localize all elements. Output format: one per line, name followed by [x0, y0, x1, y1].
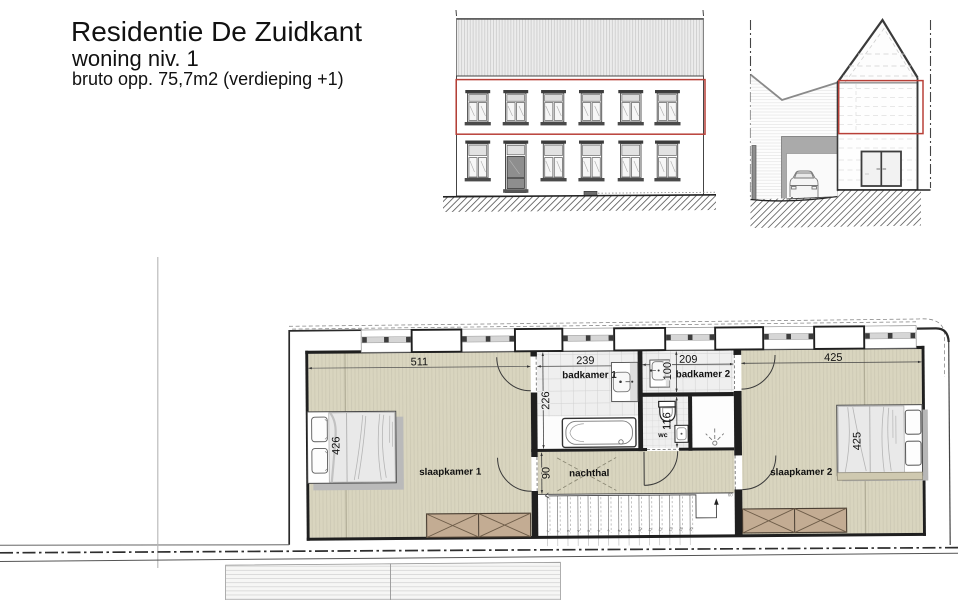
svg-text:425: 425 — [824, 352, 842, 364]
svg-text:60: 60 — [728, 492, 733, 497]
svg-text:90: 90 — [540, 467, 552, 479]
svg-text:425: 425 — [851, 432, 863, 450]
svg-text:slaapkamer 2: slaapkamer 2 — [770, 467, 833, 478]
svg-text:nachthal: nachthal — [569, 468, 610, 479]
svg-text:226: 226 — [540, 391, 552, 409]
svg-text:slaapkamer 1: slaapkamer 1 — [419, 467, 482, 478]
svg-text:511: 511 — [411, 356, 429, 368]
svg-text:badkamer 1: badkamer 1 — [562, 370, 617, 381]
svg-text:426: 426 — [330, 436, 342, 454]
svg-text:209: 209 — [679, 354, 697, 366]
svg-text:239: 239 — [576, 355, 594, 367]
svg-text:wc: wc — [657, 432, 667, 439]
svg-text:badkamer 2: badkamer 2 — [676, 369, 731, 380]
svg-text:116: 116 — [661, 412, 673, 430]
svg-text:100: 100 — [662, 362, 674, 380]
